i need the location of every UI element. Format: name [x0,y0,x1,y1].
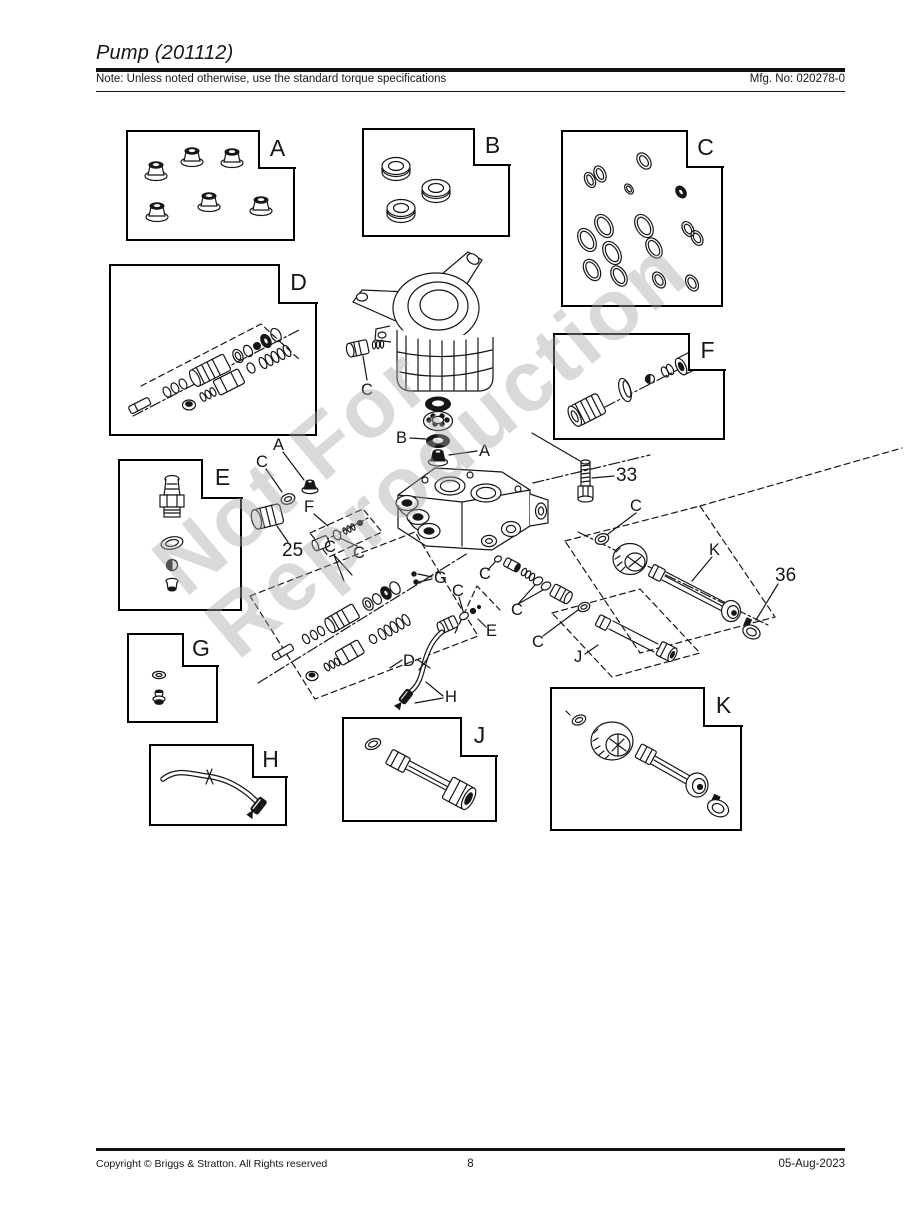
box-h-label: H [252,744,288,778]
callout-g: G [434,569,447,587]
k-tube-group: C K 36 [565,497,796,653]
box-c-label: C [686,130,724,168]
small-o-ring [153,671,166,678]
callout-c: C [353,544,365,562]
callout-f: F [304,498,314,516]
detail-box-e: E [118,459,242,611]
rings-and-ball [231,327,284,365]
bearing-seal-stack: B A [396,397,490,466]
hex-bolt [578,460,593,502]
flange-nut [181,148,203,167]
lock-nut [183,400,196,410]
callout-c: C [532,633,544,651]
page-title: Pump (201112) [96,42,234,65]
box-a-label: A [258,130,296,169]
footer-page-number: 8 [346,1158,596,1170]
box-k-letter: K [716,692,731,719]
callout-c: C [452,582,464,600]
detail-box-b: B [362,128,510,237]
e-relief-group: C E [436,582,500,640]
knurled-cap-nut [591,722,633,760]
nozzle-cone [705,794,733,821]
box-g-letter: G [192,635,210,662]
torque-note: Note: Unless noted otherwise, use the st… [96,73,446,85]
header-rule-thick [96,68,845,72]
footer: Copyright © Briggs & Stratton. All Right… [96,1158,845,1170]
callout-c: C [511,601,523,619]
spring-clip [660,363,675,378]
box-d-letter: D [290,269,307,296]
valve-washer [616,377,634,403]
oil-seal [387,200,415,223]
callout-33: 33 [616,465,637,486]
box-g-label: G [182,633,219,667]
unloader-spring [376,613,411,640]
box-e-label: E [201,459,243,499]
box-e-letter: E [215,464,230,491]
crankcase-housing [353,252,493,391]
detail-box-h: H [149,744,287,826]
manual-page: Pump (201112) Note: Unless noted otherwi… [0,0,906,1208]
oil-seal [382,158,410,181]
header-rule-thin [96,91,845,92]
detail-box-d: D [109,264,317,436]
flange-nut [145,162,167,181]
detail-box-g: G [127,633,218,723]
box-a-letter: A [270,135,285,162]
small-screw [153,690,165,704]
header-subline: Note: Unless noted otherwise, use the st… [96,73,845,85]
callout-c: C [479,565,491,583]
crankcase-plug: C [345,339,383,399]
detail-box-c: C [561,130,723,307]
box-c-letter: C [697,134,714,161]
mfg-number: Mfg. No: 020278-0 [750,73,845,85]
plug-25 [250,503,285,530]
flange-nut [250,197,272,216]
footer-date: 05-Aug-2023 [595,1158,845,1170]
tube-flange [686,773,708,797]
callout-j: J [574,648,582,666]
oil-seal [422,180,450,203]
box-k-label: K [703,687,743,727]
detail-box-k: K [550,687,742,831]
h-hose-group: H [394,632,457,710]
callout-d: D [403,652,415,670]
hose-fitting [246,797,267,819]
outlet-tube [385,749,478,811]
callout-a: A [273,436,284,454]
callout-k: K [709,541,720,559]
g-callout-group: G [412,569,447,587]
box-f-label: F [688,333,726,371]
footer-rule [96,1148,845,1151]
detail-box-f: F [553,333,725,440]
callout-b: B [396,429,407,447]
hose [163,769,257,802]
check-ball [167,560,178,571]
unloader-exploded [128,324,301,416]
bolt-33-group: 33 [532,433,637,502]
callout-h: H [445,688,457,706]
box-j-label: J [460,717,498,757]
extension-line [700,448,902,506]
o-ring-set [574,150,706,293]
j-tube-group: C J [532,589,700,677]
box-b-letter: B [485,132,500,159]
detail-box-j: J [342,717,497,822]
knurled-cap-nut [613,544,647,575]
box-h-letter: H [262,746,279,773]
footer-copyright: Copyright © Briggs & Stratton. All Right… [96,1158,346,1170]
flange-nut [221,149,243,168]
small-rings [161,378,188,399]
box-b-label: B [473,128,511,166]
valve-stem [128,397,151,414]
pump-exploded-diagram: C B A [230,240,906,720]
callout-36: 36 [775,565,796,586]
check-ball [646,375,655,384]
callout-c: C [361,381,373,399]
callout-c: C [256,453,268,471]
callout-a: A [479,442,490,460]
callout-c: C [630,497,642,515]
f-check-valve-group: F C [304,498,382,562]
box-f-letter: F [700,337,714,364]
o-ring [364,736,383,751]
callout-25: 25 [282,540,303,561]
right-check-valve-group: C C [479,555,574,619]
flange-nut [198,193,220,212]
box-j-letter: J [474,722,486,749]
callout-e: E [486,622,497,640]
small-nut [302,480,318,494]
callout-c: C [324,538,336,556]
flange-nut [146,203,168,222]
seat-plug [166,578,178,591]
threaded-plug [565,393,606,428]
center-c-callout: C [324,538,352,581]
relief-valve [160,476,184,518]
stack-nut [429,450,448,466]
box-d-label: D [278,264,318,304]
detail-box-a: A [126,130,295,241]
outlet-tube [635,744,708,797]
o-ring [566,711,587,727]
o-ring [160,535,184,551]
